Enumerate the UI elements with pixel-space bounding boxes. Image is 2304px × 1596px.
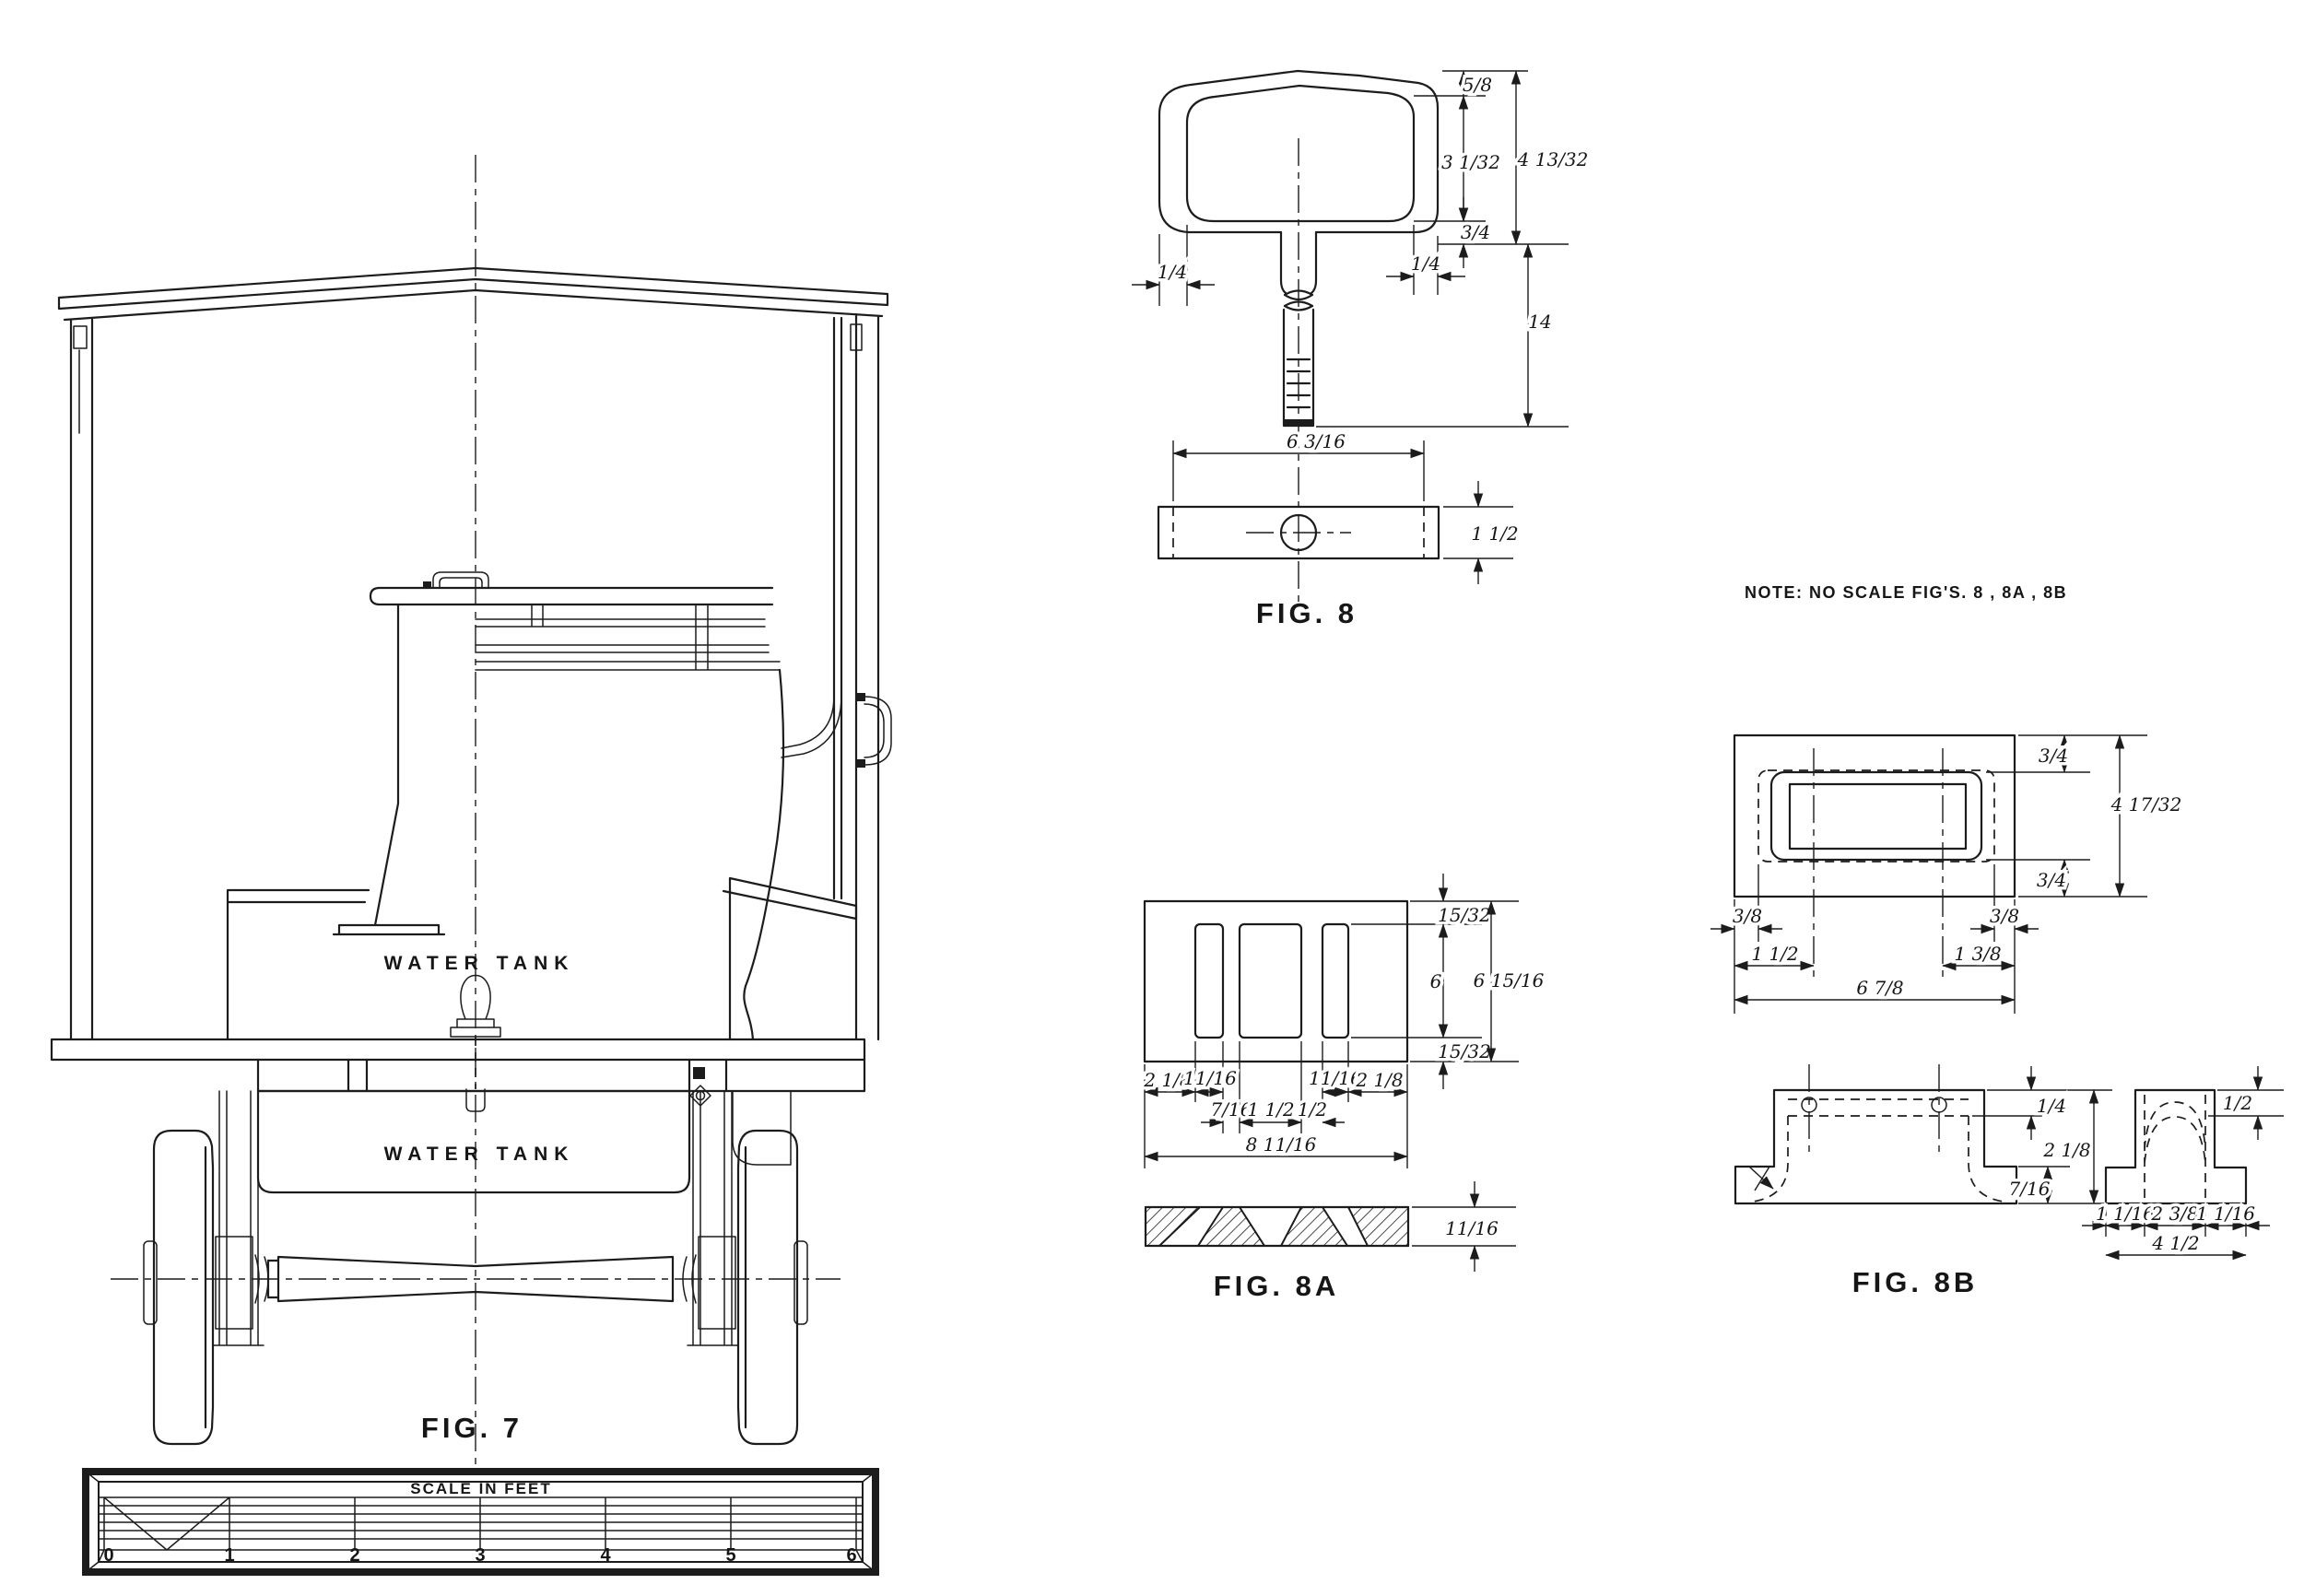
fig8b-hole-right-text: 1 3/8 (1954, 943, 2001, 965)
fig8a-slot-center (1240, 924, 1301, 1038)
upper-water-tank-label: WATER TANK (384, 953, 575, 974)
funnel-lid (370, 588, 772, 604)
fig8-base-extension-lines (1173, 440, 1513, 558)
fig8b-margin-bottom-text: 3/4 (2037, 869, 2066, 891)
scale-bar: SCALE IN FEET 0 1 2 3 4 5 6 (86, 1472, 876, 1572)
lid-handle-bolt (423, 581, 431, 588)
step-bracket (733, 1091, 791, 1165)
funnel-drum-left-half (334, 604, 444, 934)
fig8a-slotted-plate: 15/32 6 15/32 6 15/16 2 1/8 11/16 11/16 … (1143, 874, 1544, 1302)
fig8b-top-view-boss (1771, 772, 1981, 860)
scale-tick-5: 5 (725, 1545, 735, 1566)
wheel-left (154, 1131, 213, 1444)
fig8b-top-overall-height-text: 4 17/32 (2110, 793, 2182, 816)
fig8b-front-lip-text: 1/4 (2037, 1095, 2066, 1117)
tank-barrel-right-outline (744, 670, 783, 1039)
funnel-lid-handle (433, 572, 488, 588)
buffer-beam (258, 1060, 864, 1091)
fig8a-slot3-text: 1/2 (1298, 1098, 1327, 1121)
scale-bar-title: SCALE IN FEET (410, 1480, 552, 1497)
fig8b-offset-right-text: 3/8 (1990, 905, 2019, 927)
fig8-extension-lines (1159, 71, 1569, 427)
fig8a-section-hatch-2 (1198, 1207, 1264, 1246)
fig8a-slot1-text: 7/16 (1211, 1098, 1252, 1121)
fig8-handle-inner (1187, 86, 1414, 221)
fig8b-label: FIG. 8B (1852, 1266, 1979, 1298)
fig8b-side-lip-text: 1/2 (2223, 1092, 2252, 1114)
fig8a-slot2-text: 1 1/2 (1247, 1098, 1294, 1121)
fig8b-hole-left-text: 1 1/2 (1751, 943, 1798, 965)
fig8a-margin-bottom-text: 15/32 (1438, 1040, 1491, 1062)
scale-tick-6: 6 (846, 1545, 856, 1566)
fig8b-flange-right-text: 1 1/16 (2196, 1203, 2255, 1225)
scale-tick-2: 2 (349, 1545, 359, 1566)
axlebox-left (216, 1237, 253, 1329)
fig8b-flange-pointer-tick (1755, 1167, 1769, 1191)
fig8-stem-tip (1284, 419, 1313, 427)
fig7-label: FIG. 7 (421, 1412, 523, 1444)
fig8b-side-overall-width-text: 4 1/2 (2151, 1232, 2199, 1254)
fig8-dim-base-width-text: 6 3/16 (1287, 430, 1346, 452)
fig8b-margin-top-text: 3/4 (2039, 745, 2068, 767)
fig8b-side-hidden-lines (2145, 1095, 2205, 1203)
beam-bolt-head (693, 1067, 705, 1079)
fig8a-web-left-text: 11/16 (1183, 1067, 1237, 1089)
discharge-chute (723, 878, 856, 919)
fig8b-front-height-text: 2 1/8 (2042, 1139, 2090, 1161)
fig8b-hole-centerlines-top (1814, 748, 1943, 979)
scale-tick-4: 4 (600, 1545, 611, 1566)
cab-corner-fittings (74, 324, 862, 435)
fig8a-label: FIG. 8A (1214, 1270, 1340, 1302)
fig8a-margin-top-text: 15/32 (1438, 904, 1491, 926)
fig8-dim-wall-right-text: 1/4 (1411, 252, 1440, 275)
fig8-dim-wall-left-text: 1/4 (1158, 261, 1187, 283)
running-board (52, 1039, 864, 1060)
fig8a-web-right-text: 11/16 (1309, 1067, 1362, 1089)
lower-tank-box (258, 1091, 689, 1192)
fig8-label: FIG. 8 (1256, 597, 1358, 629)
fig8b-front-base-text: 7/16 (2009, 1178, 2051, 1200)
fig8b-hole-centerlines-front (1809, 1064, 1939, 1154)
drawing-sheet: WATER TANK WATER TANK FIG. 7 SCALE IN FE… (0, 0, 2304, 1596)
fig8b-flanged-block: 3/4 4 17/32 3/4 3/8 3/8 1 1/2 1 3/8 6 7/… (1710, 735, 2284, 1298)
fig8a-slot-left (1195, 924, 1223, 1038)
fig8-handle-plug: 5/8 3 1/32 3/4 4 13/32 14 1/4 1/4 6 3/16… (1132, 71, 1588, 629)
fig8a-slot-right (1322, 924, 1348, 1038)
scale-tick-3: 3 (475, 1545, 485, 1566)
axle-body (268, 1257, 673, 1301)
drawing-canvas: WATER TANK WATER TANK FIG. 7 SCALE IN FE… (0, 0, 2304, 1596)
fig8a-overall-width-text: 8 11/16 (1246, 1133, 1317, 1156)
fig8a-thickness-text: 11/16 (1445, 1217, 1499, 1239)
fig8b-offset-left-text: 3/8 (1733, 905, 1762, 927)
fig8a-slot-length-text: 6 (1430, 970, 1442, 992)
fig8a-end-right-text: 2 1/8 (1355, 1069, 1403, 1091)
fig8-dim-length-text: 14 (1528, 311, 1551, 333)
fig8b-top-overall-width-text: 6 7/8 (1856, 977, 1903, 999)
axlebox-right (699, 1237, 735, 1329)
scale-tick-0: 0 (103, 1545, 113, 1566)
fig8b-body-width-text: 2 3/8 (2150, 1203, 2198, 1225)
fig8a-section-hatch-3 (1281, 1207, 1347, 1246)
fig8b-flange-left-text: 1 1/16 (2096, 1203, 2155, 1225)
fig8a-section-hatch-1 (1146, 1207, 1200, 1246)
funnel-section-bands (476, 604, 780, 670)
fig8b-top-extension-lines (1734, 735, 2147, 1014)
wheel-right (738, 1131, 797, 1444)
fig8b-front-hidden-lines (1753, 1099, 2004, 1202)
scale-tick-1: 1 (224, 1545, 234, 1566)
fig7-end-elevation: WATER TANK WATER TANK FIG. 7 SCALE IN FE… (52, 155, 891, 1572)
fig8a-section-hatch-4 (1348, 1207, 1408, 1246)
fig8-dim-lip-text: 5/8 (1463, 74, 1492, 96)
lower-water-tank-label: WATER TANK (384, 1144, 575, 1165)
fig8a-overall-height-text: 6 15/16 (1474, 969, 1545, 992)
fig8-dim-boss-text: 3/4 (1461, 221, 1490, 243)
fig8-dim-head-text: 4 13/32 (1517, 148, 1589, 170)
fig8b-top-view-recess (1790, 784, 1966, 849)
fig8-dim-thickness-text: 1 1/2 (1471, 522, 1518, 545)
fig8b-flange-pointer (1749, 1167, 1773, 1189)
no-scale-note: NOTE: NO SCALE FIG'S. 8 , 8A , 8B (1745, 583, 2067, 602)
fig8-dim-opening-text: 3 1/32 (1441, 151, 1500, 173)
side-pipe-bend (782, 696, 841, 757)
fig8b-top-view-outline (1734, 735, 2015, 897)
